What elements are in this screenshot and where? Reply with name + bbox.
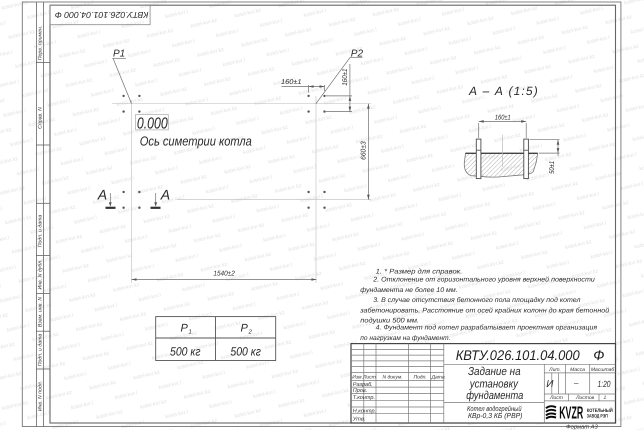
svg-text:Масштаб: Масштаб xyxy=(591,367,615,373)
svg-text:Перв. примен.: Перв. примен. xyxy=(38,26,44,60)
svg-text:160±1: 160±1 xyxy=(342,68,349,85)
svg-text:ЗАВОД РЭП: ЗАВОД РЭП xyxy=(587,413,608,419)
svg-text:КВТУ.026.101.04.000 Ф: КВТУ.026.101.04.000 Ф xyxy=(55,10,149,20)
svg-text:Изм.Лист: Изм.Лист xyxy=(352,375,376,381)
svg-text:по нагрузкам на фундамент.: по нагрузкам на фундамент. xyxy=(360,335,450,342)
svg-text:1: 1 xyxy=(189,329,192,336)
svg-text:P1: P1 xyxy=(113,49,125,60)
svg-text:160±1: 160±1 xyxy=(281,79,302,86)
svg-text:И: И xyxy=(546,379,554,390)
svg-text:500 кг: 500 кг xyxy=(230,345,261,359)
svg-text:Листов: Листов xyxy=(575,395,595,401)
svg-text:N докум.: N докум. xyxy=(383,375,403,381)
svg-text:Инв. N подл.: Инв. N подл. xyxy=(38,381,44,411)
svg-text:P2: P2 xyxy=(351,48,364,59)
svg-text:забетонировать. Расстояние от: забетонировать. Расстояние от осей крайн… xyxy=(359,306,609,314)
svg-text:Задание на: Задание на xyxy=(468,366,521,378)
svg-text:–: – xyxy=(573,379,579,388)
svg-text:Лист: Лист xyxy=(549,395,563,401)
svg-text:Взам. инв. N: Взам. инв. N xyxy=(38,297,44,327)
svg-text:P: P xyxy=(241,323,249,335)
svg-text:500 кг: 500 кг xyxy=(170,345,201,359)
svg-text:Н.контр.: Н.контр. xyxy=(353,408,376,414)
svg-text:A: A xyxy=(97,187,107,203)
svg-text:фундамента: фундамента xyxy=(466,390,523,402)
svg-text:Пров.: Пров. xyxy=(353,388,368,394)
svg-text:160±1: 160±1 xyxy=(495,115,511,122)
svg-text:Утв.: Утв. xyxy=(352,417,366,423)
svg-text:КОТЕЛЬНЫЙ: КОТЕЛЬНЫЙ xyxy=(587,407,613,414)
svg-text:Справ. N: Справ. N xyxy=(38,107,44,129)
svg-text:2: 2 xyxy=(248,329,253,336)
svg-text:1. * Размер для справок.: 1. * Размер для справок. xyxy=(376,268,463,275)
svg-text:А – А (1:5): А – А (1:5) xyxy=(468,84,538,98)
svg-text:Дата: Дата xyxy=(431,375,445,381)
svg-text:0.000: 0.000 xyxy=(137,116,168,133)
svg-text:подушки 500 мм.: подушки 500 мм. xyxy=(360,317,419,324)
svg-text:4. Фундамент под котел разраб: 4. Фундамент под котел разрабатывает про… xyxy=(376,325,598,332)
svg-text:2. Отклонение от горизонтально: 2. Отклонение от горизонтального уровня … xyxy=(372,276,595,284)
svg-text:1: 1 xyxy=(604,395,607,401)
svg-text:Масса: Масса xyxy=(570,367,585,373)
svg-text:KVZR: KVZR xyxy=(559,402,583,422)
svg-text:Лит.: Лит. xyxy=(548,367,561,373)
svg-text:Разраб.: Разраб. xyxy=(353,381,373,388)
svg-text:1540±2: 1540±2 xyxy=(213,271,234,278)
svg-text:660±3: 660±3 xyxy=(360,141,367,160)
svg-text:A: A xyxy=(160,187,170,203)
svg-text:P: P xyxy=(181,323,189,335)
svg-text:Т.контр.: Т.контр. xyxy=(353,395,375,401)
svg-text:Подп. и дата: Подп. и дата xyxy=(38,334,44,367)
svg-text:установку: установку xyxy=(469,379,519,391)
svg-text:КВр-0,3 КБ (РВР): КВр-0,3 КБ (РВР) xyxy=(468,411,523,420)
svg-text:КВТУ.026.101.04.000: КВТУ.026.101.04.000 xyxy=(456,347,580,363)
svg-text:Формат А3: Формат А3 xyxy=(566,423,598,430)
svg-text:3. В случае отсутствия бетонн: 3. В случае отсутствия бетонного пола пл… xyxy=(373,297,580,304)
svg-text:50±1: 50±1 xyxy=(549,161,556,174)
svg-text:Инв. N дубл.: Инв. N дубл. xyxy=(38,259,44,289)
svg-text:Ось симетрии котла: Ось симетрии котла xyxy=(140,133,252,148)
svg-text:1:20: 1:20 xyxy=(598,379,611,389)
svg-text:фундамента не более 10 мм.: фундамента не более 10 мм. xyxy=(360,287,457,294)
svg-text:Подп.: Подп. xyxy=(414,375,427,381)
svg-text:Подп. и дата: Подп. и дата xyxy=(38,215,44,248)
svg-text:Ф: Ф xyxy=(593,347,604,363)
